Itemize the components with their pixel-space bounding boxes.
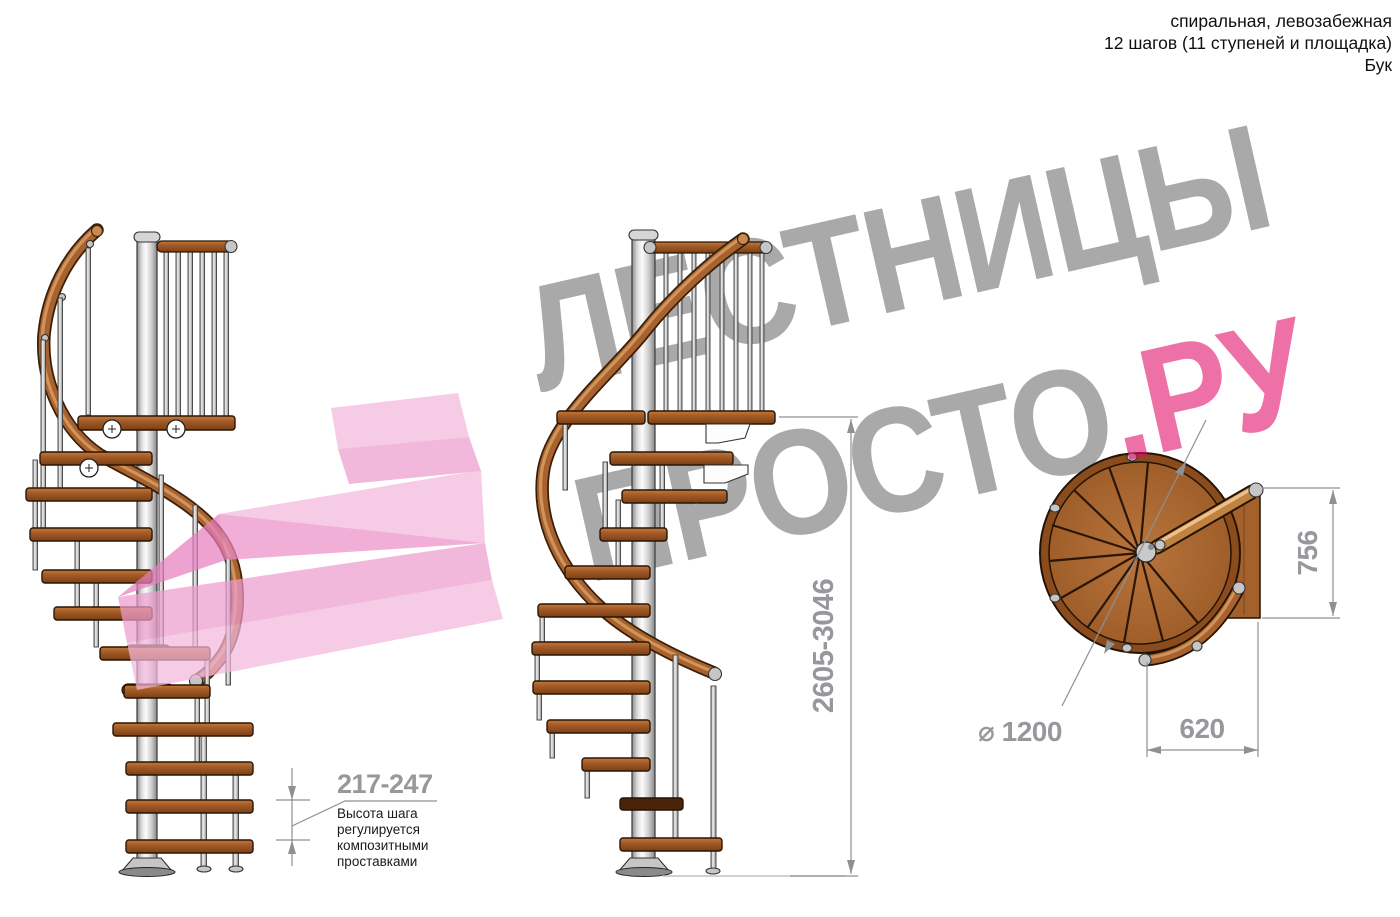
baluster <box>678 253 682 413</box>
baluster <box>563 424 568 490</box>
spec-material: Бук <box>1104 54 1392 76</box>
tread <box>126 762 253 775</box>
dimension-platform-depth: 756 <box>1262 488 1340 618</box>
platform-tread <box>557 411 645 424</box>
support-bracket <box>706 424 750 443</box>
technical-drawing: 217-247 Высота шага регулируется компози… <box>0 0 1400 917</box>
total-height-value: 2605-3046 <box>808 579 840 714</box>
tread <box>600 528 667 541</box>
spec-type: спиральная, левозабежная <box>1104 10 1392 32</box>
arrow-down <box>1329 602 1337 616</box>
tread <box>54 607 152 620</box>
tread <box>565 566 650 579</box>
post-foot <box>706 868 720 874</box>
baluster <box>550 730 555 758</box>
platform-tread <box>648 411 775 424</box>
baluster <box>720 253 724 413</box>
tube-end-cap <box>1249 483 1263 497</box>
base-disc <box>119 868 175 877</box>
baluster-top <box>1050 504 1060 512</box>
platform-railing <box>157 241 237 417</box>
platform-handrail <box>157 241 233 252</box>
handrail-end-cap <box>1139 654 1151 666</box>
baluster <box>159 475 164 645</box>
pole-cap <box>134 232 160 242</box>
platform-tread <box>78 416 235 430</box>
arrow-down <box>847 860 855 874</box>
baluster <box>224 252 229 416</box>
spec-header: спиральная, левозабежная 12 шагов (11 ст… <box>1104 10 1392 76</box>
baluster <box>200 252 205 416</box>
baluster <box>585 768 590 798</box>
note-line: проставками <box>337 854 417 869</box>
tread <box>582 758 650 771</box>
tread <box>622 490 727 503</box>
baluster <box>193 505 198 647</box>
tread <box>26 488 152 501</box>
tread <box>113 723 253 736</box>
baluster <box>734 253 738 413</box>
drawing-page: ЛЕСТНИЦЫ ПРОСТО.РУ <box>0 0 1400 917</box>
side-view-middle <box>532 230 845 877</box>
baluster <box>86 248 91 415</box>
diameter-value: ⌀ 1200 <box>978 716 1062 747</box>
tread <box>547 720 650 733</box>
baluster <box>212 252 217 416</box>
tread <box>533 681 650 694</box>
post-foot <box>197 866 211 872</box>
tread <box>620 838 722 851</box>
arrow-right <box>1244 746 1258 754</box>
pole-base <box>119 858 175 877</box>
baluster-top <box>1127 453 1137 461</box>
handrail-end-cap <box>1233 582 1245 594</box>
pole-base <box>616 858 672 877</box>
dimension-total-height: 2605-3046 <box>779 417 858 876</box>
step-height-value: 217-247 <box>337 769 433 799</box>
baluster-top <box>1122 644 1132 652</box>
baluster <box>176 252 181 416</box>
tread <box>42 570 152 583</box>
note-line: регулируется <box>337 822 420 837</box>
tube-ball-joint <box>1155 540 1165 550</box>
baluster <box>603 462 608 528</box>
arrow-up <box>1329 490 1337 504</box>
arrow-up <box>847 419 855 433</box>
center-pole-hub <box>1148 544 1154 550</box>
baluster <box>188 252 193 416</box>
handrail-top-cap <box>738 234 749 245</box>
baluster <box>748 253 752 413</box>
tread <box>30 528 152 541</box>
note-line: Высота шага <box>337 806 418 821</box>
pole-cap <box>629 230 658 240</box>
handrail-top-cap <box>92 226 103 237</box>
tread <box>124 685 210 698</box>
tread <box>538 604 650 617</box>
arrow-left <box>1147 746 1161 754</box>
handrail-bottom-cap <box>709 668 722 681</box>
platform-handrail <box>648 242 768 253</box>
baluster <box>760 253 764 413</box>
platform-depth-value: 756 <box>1292 530 1323 575</box>
handrail-end-cap <box>644 242 656 254</box>
baluster <box>33 460 38 570</box>
top-view-plan <box>1040 453 1263 666</box>
support-bracket <box>704 465 748 483</box>
step-height-note: Высота шага регулируется композитными пр… <box>337 806 428 869</box>
baluster-top <box>1050 594 1060 602</box>
baluster <box>164 252 169 416</box>
side-view-left <box>26 226 253 877</box>
handrail-end-cap <box>225 241 237 253</box>
arrow-up <box>288 840 296 854</box>
handrail-end-cap <box>760 242 772 254</box>
baluster <box>706 253 710 413</box>
spec-steps: 12 шагов (11 ступеней и площадка) <box>1104 32 1392 54</box>
post-foot <box>229 866 243 872</box>
tread <box>532 642 650 655</box>
tread <box>610 452 733 465</box>
base-disc <box>616 868 672 877</box>
arrow-down <box>288 786 296 800</box>
baluster <box>535 652 540 681</box>
baluster <box>540 614 545 642</box>
landing-width-value: 620 <box>1179 713 1224 744</box>
dimension-step-height: 217-247 Высота шага регулируется компози… <box>276 768 437 869</box>
tread-edge-on <box>620 798 683 810</box>
baluster <box>226 558 231 685</box>
baluster <box>664 253 668 413</box>
baluster <box>537 691 542 720</box>
tread <box>100 647 210 660</box>
tread <box>126 840 253 853</box>
handrail-support <box>1192 641 1202 651</box>
note-line: композитными <box>337 838 428 853</box>
tread <box>126 800 253 813</box>
rail-joint <box>87 241 94 248</box>
